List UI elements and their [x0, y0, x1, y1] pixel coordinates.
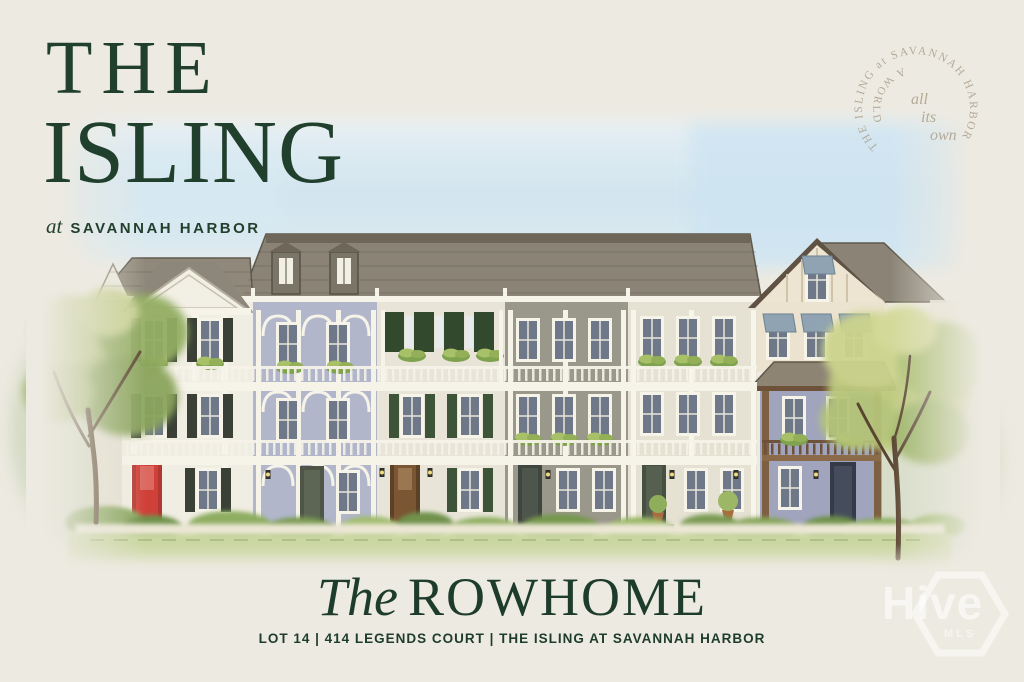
- svg-text:its: its: [921, 109, 936, 126]
- hive-sub-label: MLS: [944, 628, 976, 640]
- logo-tagline: at SAVANNAH HARBOR: [46, 214, 344, 239]
- dormer-left: [269, 242, 303, 294]
- isling-logo: THE ISLING at SAVANNAH HARBOR: [46, 30, 344, 239]
- headline-block: TheROWHOME LOT 14 | 414 LEGENDS COURT | …: [0, 570, 1024, 646]
- rowhome-unit-3: [377, 302, 505, 533]
- green-shutter-band: [384, 312, 494, 352]
- address-line: LOT 14 | 414 LEGENDS COURT | THE ISLING …: [0, 631, 1024, 646]
- svg-text:own: own: [930, 127, 957, 144]
- seal-center-text: all its own: [911, 91, 957, 144]
- logo-tagline-at: at: [46, 214, 62, 239]
- flyer-canvas: THE ISLING at SAVANNAH HARBOR THE ISLING…: [0, 0, 1024, 682]
- plan-title: TheROWHOME: [0, 570, 1024, 624]
- hive-brand-text: Hive: [882, 576, 983, 630]
- rowhome-unit-5: [628, 302, 757, 533]
- plan-title-prefix: The: [317, 567, 398, 627]
- logo-line-the: THE: [46, 30, 344, 106]
- hive-mls-watermark: Hive MLS: [878, 568, 1014, 660]
- plan-title-main: ROWHOME: [408, 567, 707, 627]
- svg-text:all: all: [911, 91, 928, 108]
- dormer-right: [327, 242, 361, 294]
- rowhome-unit-4: [505, 302, 628, 533]
- isling-seal-badge: THE ISLING at SAVANNAH HARBOR A WORLD al…: [833, 24, 1001, 196]
- logo-line-isling: ISLING: [43, 108, 344, 198]
- logo-tagline-location: SAVANNAH HARBOR: [70, 220, 260, 237]
- lawn: [68, 524, 952, 570]
- rowhome-unit-2: [253, 302, 377, 533]
